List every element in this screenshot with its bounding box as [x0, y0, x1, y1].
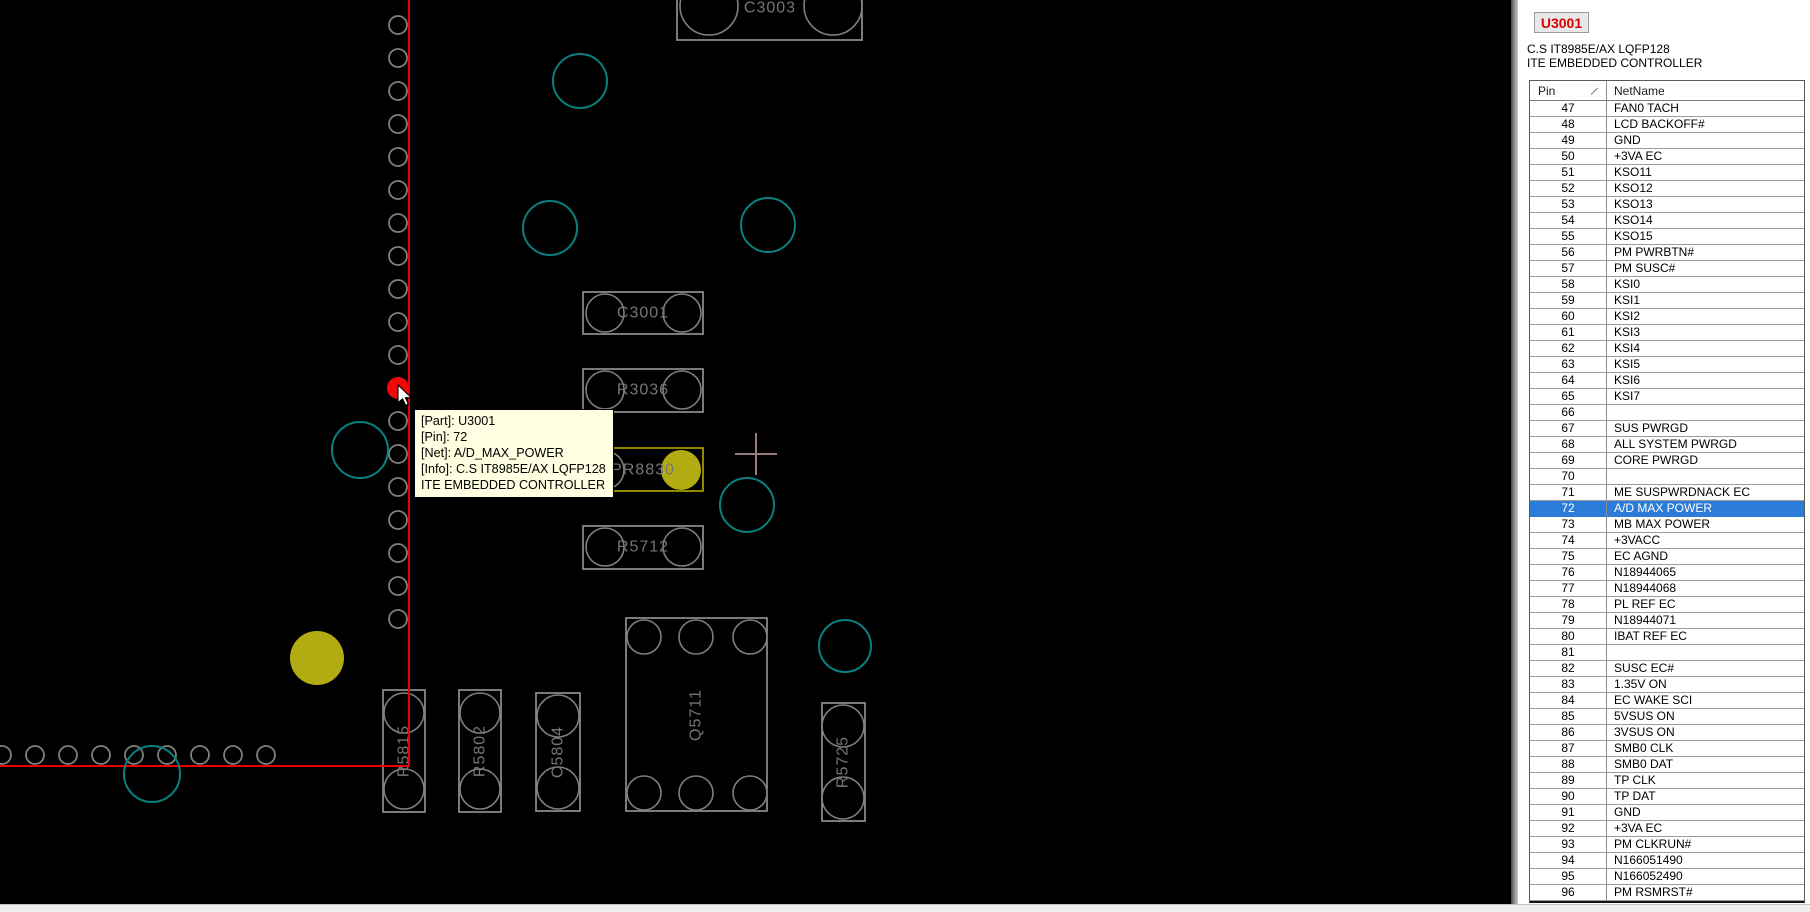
component-label: Q5711 [688, 689, 705, 741]
pin-cell: 68 [1530, 437, 1607, 453]
tooltip-info-line: [Info]: C.S IT8985E/AX LQFP128 [421, 461, 607, 477]
netname-cell: MB MAX POWER [1607, 517, 1804, 533]
netname-cell: KSO11 [1607, 165, 1804, 181]
pin-cell: 61 [1530, 325, 1607, 341]
table-row[interactable]: 66 [1530, 405, 1804, 421]
part-ref-button[interactable]: U3001 [1534, 12, 1589, 33]
pin-cell: 55 [1530, 229, 1607, 245]
pin-cell: 66 [1530, 405, 1607, 421]
table-row[interactable]: 76N18944065 [1530, 565, 1804, 581]
netname-cell: TP CLK [1607, 773, 1804, 789]
netname-cell: KSI4 [1607, 341, 1804, 357]
panel-splitter[interactable] [1511, 0, 1518, 904]
table-row[interactable]: 831.35V ON [1530, 677, 1804, 693]
pin-cell: 76 [1530, 565, 1607, 581]
pin-cell: 59 [1530, 293, 1607, 309]
pin-cell: 63 [1530, 357, 1607, 373]
pin-cell: 86 [1530, 725, 1607, 741]
part-info-line2: ITE EMBEDDED CONTROLLER [1527, 57, 1702, 71]
netname-cell: N18944071 [1607, 613, 1804, 629]
pin-cell: 65 [1530, 389, 1607, 405]
pin-cell: 85 [1530, 709, 1607, 725]
netname-cell: FAN0 TACH [1607, 101, 1804, 117]
component-label: PR8830 [611, 462, 675, 479]
pin-cell: 91 [1530, 805, 1607, 821]
netname-cell: GND [1607, 133, 1804, 149]
table-row[interactable]: 82SUSC EC# [1530, 661, 1804, 677]
netname-cell: N18944068 [1607, 581, 1804, 597]
column-header-pin[interactable]: Pin [1530, 81, 1607, 100]
netname-cell: KSI5 [1607, 357, 1804, 373]
netname-cell: KSO12 [1607, 181, 1804, 197]
netname-cell: GND [1607, 805, 1804, 821]
table-row[interactable]: 94N166051490 [1530, 853, 1804, 869]
netname-cell: KSI7 [1607, 389, 1804, 405]
pin-cell: 80 [1530, 629, 1607, 645]
table-row[interactable]: 52KSO12 [1530, 181, 1804, 197]
table-row[interactable]: 90TP DAT [1530, 789, 1804, 805]
table-row[interactable]: 80IBAT REF EC [1530, 629, 1804, 645]
netname-cell: PM SUSC# [1607, 261, 1804, 277]
netname-cell: ALL SYSTEM PWRGD [1607, 437, 1804, 453]
netname-cell: 5VSUS ON [1607, 709, 1804, 725]
table-row[interactable]: 50+3VA EC [1530, 149, 1804, 165]
table-row[interactable]: 74+3VACC [1530, 533, 1804, 549]
tooltip-pin-line: [Pin]: 72 [421, 429, 607, 445]
table-row[interactable]: 863VSUS ON [1530, 725, 1804, 741]
table-row[interactable]: 75EC AGND [1530, 549, 1804, 565]
part-info: C.S IT8985E/AX LQFP128 ITE EMBEDDED CONT… [1527, 43, 1702, 70]
netname-cell: N166051490 [1607, 853, 1804, 869]
netname-cell: KSI6 [1607, 373, 1804, 389]
pin-cell: 73 [1530, 517, 1607, 533]
table-row[interactable]: 92+3VA EC [1530, 821, 1804, 837]
pin-cell: 60 [1530, 309, 1607, 325]
pin-cell: 64 [1530, 373, 1607, 389]
sort-ascending-icon [1590, 87, 1599, 96]
pin-cell: 74 [1530, 533, 1607, 549]
component-label: C5804 [550, 726, 567, 778]
pin-cell: 83 [1530, 677, 1607, 693]
table-row[interactable]: 855VSUS ON [1530, 709, 1804, 725]
table-row[interactable]: 61KSI3 [1530, 325, 1804, 341]
pin-cell: 77 [1530, 581, 1607, 597]
table-row[interactable]: 91GND [1530, 805, 1804, 821]
window-bottom-edge [0, 904, 1810, 912]
netname-cell: PM PWRBTN# [1607, 245, 1804, 261]
pin-cell: 96 [1530, 885, 1607, 901]
netname-cell: A/D MAX POWER [1607, 501, 1804, 517]
table-row[interactable]: 57PM SUSC# [1530, 261, 1804, 277]
table-row[interactable]: 96PM RSMRST# [1530, 885, 1804, 901]
component-label: R5725 [835, 736, 852, 788]
tooltip-net-line: [Net]: A/D_MAX_POWER [421, 445, 607, 461]
netname-cell: TP DAT [1607, 789, 1804, 805]
table-row[interactable]: 56PM PWRBTN# [1530, 245, 1804, 261]
pin-cell: 82 [1530, 661, 1607, 677]
table-row[interactable]: 53KSO13 [1530, 197, 1804, 213]
table-row[interactable]: 88SMB0 DAT [1530, 757, 1804, 773]
table-row[interactable]: 70 [1530, 469, 1804, 485]
netname-cell: KSI1 [1607, 293, 1804, 309]
table-row[interactable]: 93PM CLKRUN# [1530, 837, 1804, 853]
table-row[interactable]: 72A/D MAX POWER [1530, 501, 1804, 517]
board-view[interactable]: C3003C3001R3036PR8830R5712Q5711R5815R580… [0, 0, 1511, 904]
component-label: C3003 [744, 0, 796, 17]
netname-cell: SMB0 DAT [1607, 757, 1804, 773]
pin-list-panel: U3001 C.S IT8985E/AX LQFP128 ITE EMBEDDE… [1518, 0, 1810, 904]
netname-cell: +3VA EC [1607, 821, 1804, 837]
pin-cell: 88 [1530, 757, 1607, 773]
table-row[interactable]: 81 [1530, 645, 1804, 661]
pin-cell: 51 [1530, 165, 1607, 181]
netname-cell: EC WAKE SCI [1607, 693, 1804, 709]
component-label: R5802 [472, 725, 489, 777]
table-row[interactable]: 63KSI5 [1530, 357, 1804, 373]
netname-cell: PL REF EC [1607, 597, 1804, 613]
pin-cell: 62 [1530, 341, 1607, 357]
netname-cell [1607, 469, 1804, 485]
pin-cell: 56 [1530, 245, 1607, 261]
pin-cell: 71 [1530, 485, 1607, 501]
pin-cell: 75 [1530, 549, 1607, 565]
pin-cell: 50 [1530, 149, 1607, 165]
pin-table: Pin NetName 47FAN0 TACH48LCD BACKOFF#49G… [1529, 80, 1805, 903]
pin-cell: 49 [1530, 133, 1607, 149]
boardviewer-window: C3003C3001R3036PR8830R5712Q5711R5815R580… [0, 0, 1810, 912]
tooltip-part-line: [Part]: U3001 [421, 413, 607, 429]
netname-cell: 1.35V ON [1607, 677, 1804, 693]
netname-cell: SUS PWRGD [1607, 421, 1804, 437]
table-row[interactable]: 47FAN0 TACH [1530, 101, 1804, 117]
netname-cell: +3VACC [1607, 533, 1804, 549]
pin-cell: 78 [1530, 597, 1607, 613]
table-row[interactable]: 62KSI4 [1530, 341, 1804, 357]
table-row[interactable]: 60KSI2 [1530, 309, 1804, 325]
mouse-cursor-icon [396, 384, 418, 408]
netname-cell: KSI3 [1607, 325, 1804, 341]
table-row[interactable]: 87SMB0 CLK [1530, 741, 1804, 757]
pin-cell: 58 [1530, 277, 1607, 293]
table-row[interactable]: 67SUS PWRGD [1530, 421, 1804, 437]
netname-cell: KSI0 [1607, 277, 1804, 293]
netname-cell [1607, 405, 1804, 421]
pin-cell: 92 [1530, 821, 1607, 837]
netname-cell: EC AGND [1607, 549, 1804, 565]
table-row[interactable]: 84EC WAKE SCI [1530, 693, 1804, 709]
part-info-line1: C.S IT8985E/AX LQFP128 [1527, 43, 1702, 57]
pin-cell: 47 [1530, 101, 1607, 117]
netname-cell: IBAT REF EC [1607, 629, 1804, 645]
table-row[interactable]: 77N18944068 [1530, 581, 1804, 597]
netname-cell: 3VSUS ON [1607, 725, 1804, 741]
table-row[interactable]: 79N18944071 [1530, 613, 1804, 629]
pin-cell: 67 [1530, 421, 1607, 437]
pin-cell: 93 [1530, 837, 1607, 853]
netname-cell: N166052490 [1607, 869, 1804, 885]
table-row[interactable]: 59KSI1 [1530, 293, 1804, 309]
pin-cell: 89 [1530, 773, 1607, 789]
table-row[interactable]: 95N166052490 [1530, 869, 1804, 885]
table-row[interactable]: 89TP CLK [1530, 773, 1804, 789]
table-row[interactable]: 64KSI6 [1530, 373, 1804, 389]
netname-cell: SUSC EC# [1607, 661, 1804, 677]
net-highlight-dot[interactable] [290, 631, 344, 685]
pin-cell: 69 [1530, 453, 1607, 469]
pin-table-header: Pin NetName [1530, 81, 1804, 101]
component-label: C3001 [617, 305, 669, 322]
pin-cell: 70 [1530, 469, 1607, 485]
table-row[interactable]: 78PL REF EC [1530, 597, 1804, 613]
table-row[interactable]: 65KSI7 [1530, 389, 1804, 405]
column-header-netname[interactable]: NetName [1607, 81, 1804, 100]
pin-cell: 87 [1530, 741, 1607, 757]
netname-cell: LCD BACKOFF# [1607, 117, 1804, 133]
netname-cell: SMB0 CLK [1607, 741, 1804, 757]
table-row[interactable]: 54KSO14 [1530, 213, 1804, 229]
board-canvas[interactable]: C3003C3001R3036PR8830R5712Q5711R5815R580… [0, 0, 1511, 904]
pin-cell: 81 [1530, 645, 1607, 661]
pin-cell: 79 [1530, 613, 1607, 629]
table-row[interactable]: 68ALL SYSTEM PWRGD [1530, 437, 1804, 453]
pin-cell: 53 [1530, 197, 1607, 213]
netname-cell: KSO14 [1607, 213, 1804, 229]
pin-cell: 84 [1530, 693, 1607, 709]
netname-cell: PM RSMRST# [1607, 885, 1804, 901]
pin-cell: 95 [1530, 869, 1607, 885]
netname-cell: PM CLKRUN# [1607, 837, 1804, 853]
pin-cell: 94 [1530, 853, 1607, 869]
component-label: R3036 [617, 382, 669, 399]
tooltip-info-line2: ITE EMBEDDED CONTROLLER [421, 477, 607, 493]
table-row[interactable]: 48LCD BACKOFF# [1530, 117, 1804, 133]
netname-cell: +3VA EC [1607, 149, 1804, 165]
netname-cell: KSO15 [1607, 229, 1804, 245]
pin-cell: 72 [1530, 501, 1607, 517]
pin-cell: 48 [1530, 117, 1607, 133]
table-row[interactable]: 49GND [1530, 133, 1804, 149]
pin-cell: 90 [1530, 789, 1607, 805]
pin-cell: 54 [1530, 213, 1607, 229]
pin-cell: 52 [1530, 181, 1607, 197]
netname-cell: CORE PWRGD [1607, 453, 1804, 469]
netname-cell: N18944065 [1607, 565, 1804, 581]
table-row[interactable]: 58KSI0 [1530, 277, 1804, 293]
netname-cell: ME SUSPWRDNACK EC [1607, 485, 1804, 501]
pin-tooltip: [Part]: U3001 [Pin]: 72 [Net]: A/D_MAX_P… [414, 409, 614, 498]
component-label: R5712 [617, 539, 669, 556]
table-row[interactable]: 71ME SUSPWRDNACK EC [1530, 485, 1804, 501]
table-row[interactable]: 55KSO15 [1530, 229, 1804, 245]
table-row[interactable]: 51KSO11 [1530, 165, 1804, 181]
netname-cell [1607, 645, 1804, 661]
table-row[interactable]: 73MB MAX POWER [1530, 517, 1804, 533]
table-row[interactable]: 69CORE PWRGD [1530, 453, 1804, 469]
netname-cell: KSI2 [1607, 309, 1804, 325]
netname-cell: KSO13 [1607, 197, 1804, 213]
pin-cell: 57 [1530, 261, 1607, 277]
pin-table-body: 47FAN0 TACH48LCD BACKOFF#49GND50+3VA EC5… [1530, 101, 1804, 901]
